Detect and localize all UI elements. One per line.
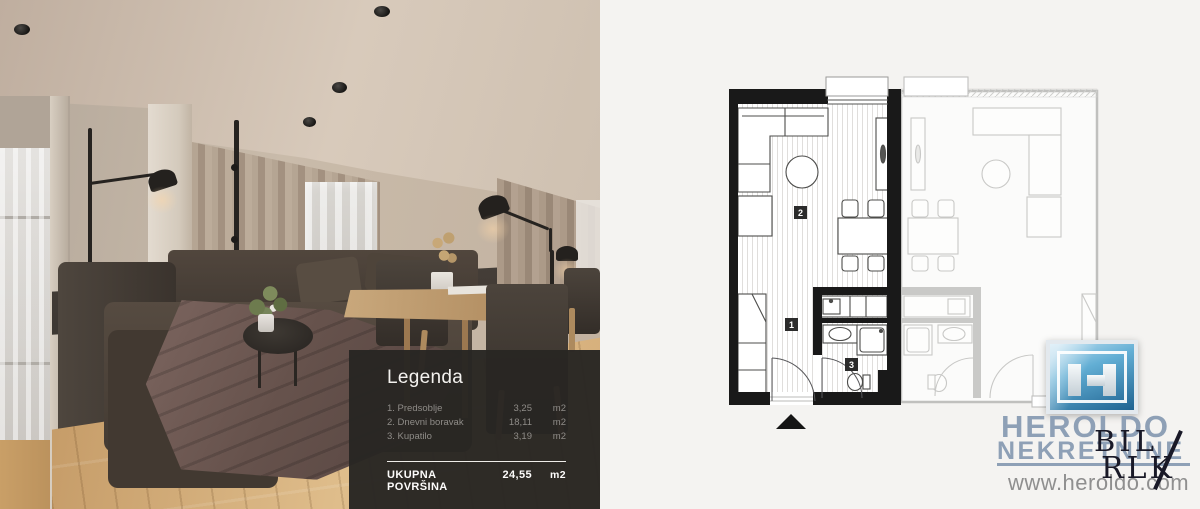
wall-lamp-elbow xyxy=(549,228,552,252)
total-value: 24,55 xyxy=(484,469,532,481)
lamp-glow xyxy=(146,186,178,214)
floor-lamp-pole xyxy=(234,120,239,266)
legend-row: 1. Predsoblje 3,25 m2 xyxy=(387,402,566,416)
ceiling-spotlight xyxy=(374,6,390,17)
room-area: 3,19 xyxy=(484,430,532,444)
plan-closet xyxy=(738,294,766,398)
chair-post xyxy=(569,308,575,352)
lamp-joint xyxy=(231,236,238,243)
room-name: 3. Kupatilo xyxy=(387,430,484,444)
floorplan-main-unit: 2 1 3 xyxy=(729,77,901,429)
total-label: UKUPNA POVRŠINA xyxy=(387,469,484,493)
ceiling-spotlight xyxy=(332,82,347,93)
legend-total-row: UKUPNA POVRŠINA 24,55 m2 xyxy=(387,469,566,493)
coffee-table xyxy=(243,318,313,354)
room-label-3: 3 xyxy=(849,360,854,370)
room-name: 2. Dnevni boravak xyxy=(387,416,484,430)
legend-row: 3. Kupatilo 3,19 m2 xyxy=(387,430,566,444)
area-unit: m2 xyxy=(532,402,566,416)
icon-h-mid-bar xyxy=(1087,375,1105,386)
legend-divider xyxy=(387,461,566,462)
room-name: 1. Predsoblje xyxy=(387,402,484,416)
room-area: 18,11 xyxy=(484,416,532,430)
listing-image: Legenda 1. Predsoblje 3,25 m2 2. Dnevni … xyxy=(0,0,1200,509)
ceiling-spotlight xyxy=(303,117,316,127)
wall-lamp-pole xyxy=(88,128,92,265)
heroldo-logo-icon xyxy=(1046,340,1138,414)
coffee-table-leg xyxy=(294,350,297,386)
dried-plant xyxy=(428,228,460,278)
adjacent-balcony-slab xyxy=(904,77,968,96)
room-label-1: 1 xyxy=(789,320,794,330)
room-label-2: 2 xyxy=(798,208,803,218)
plan-ottoman xyxy=(738,196,772,236)
legend-row: 2. Dnevni boravak 18,11 m2 xyxy=(387,416,566,430)
lamp-joint xyxy=(231,164,238,171)
lamp-glow xyxy=(476,214,510,244)
plant-vase xyxy=(258,314,274,332)
ceiling-spotlight xyxy=(14,24,30,35)
area-unit: m2 xyxy=(532,430,566,444)
legend-panel: Legenda 1. Predsoblje 3,25 m2 2. Dnevni … xyxy=(349,350,600,509)
balcony-slab xyxy=(826,77,888,96)
legend-title: Legenda xyxy=(387,367,566,389)
icon-h-left-bar xyxy=(1068,364,1081,396)
total-unit: m2 xyxy=(532,469,566,481)
coffee-table-leg xyxy=(258,348,261,388)
entrance-threshold xyxy=(770,392,813,405)
plan-coffee-table xyxy=(786,156,818,188)
area-unit: m2 xyxy=(532,416,566,430)
plan-dining-table xyxy=(838,218,888,254)
room-area: 3,25 xyxy=(484,402,532,416)
entrance-arrow xyxy=(776,414,806,429)
